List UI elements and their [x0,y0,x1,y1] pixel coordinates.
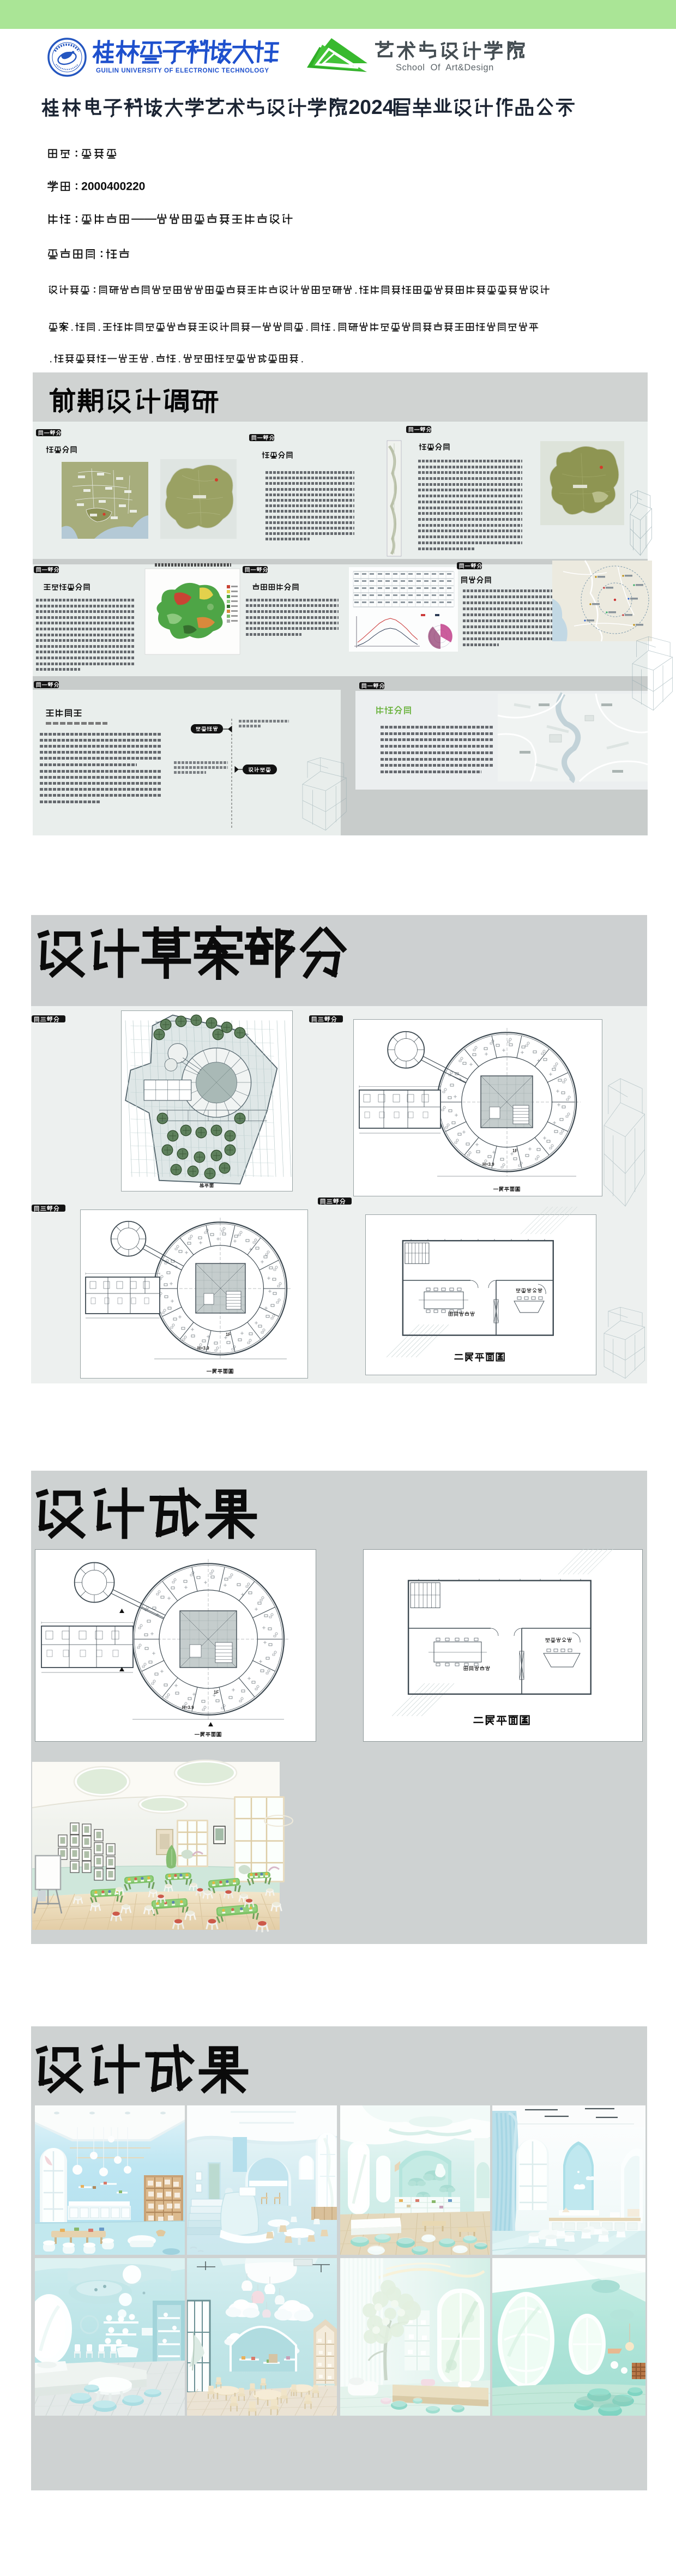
svg-text:H=3.9: H=3.9 [197,1346,209,1351]
svg-text:2000400220: 2000400220 [81,180,145,192]
svg-text:1F: 1F [214,1690,219,1695]
svg-text:2024: 2024 [349,95,394,118]
svg-text:1F: 1F [512,1148,517,1153]
svg-text:1F: 1F [226,1332,231,1337]
svg-text:H=3.9: H=3.9 [182,1705,194,1710]
svg-text:H=3.9: H=3.9 [482,1162,494,1167]
